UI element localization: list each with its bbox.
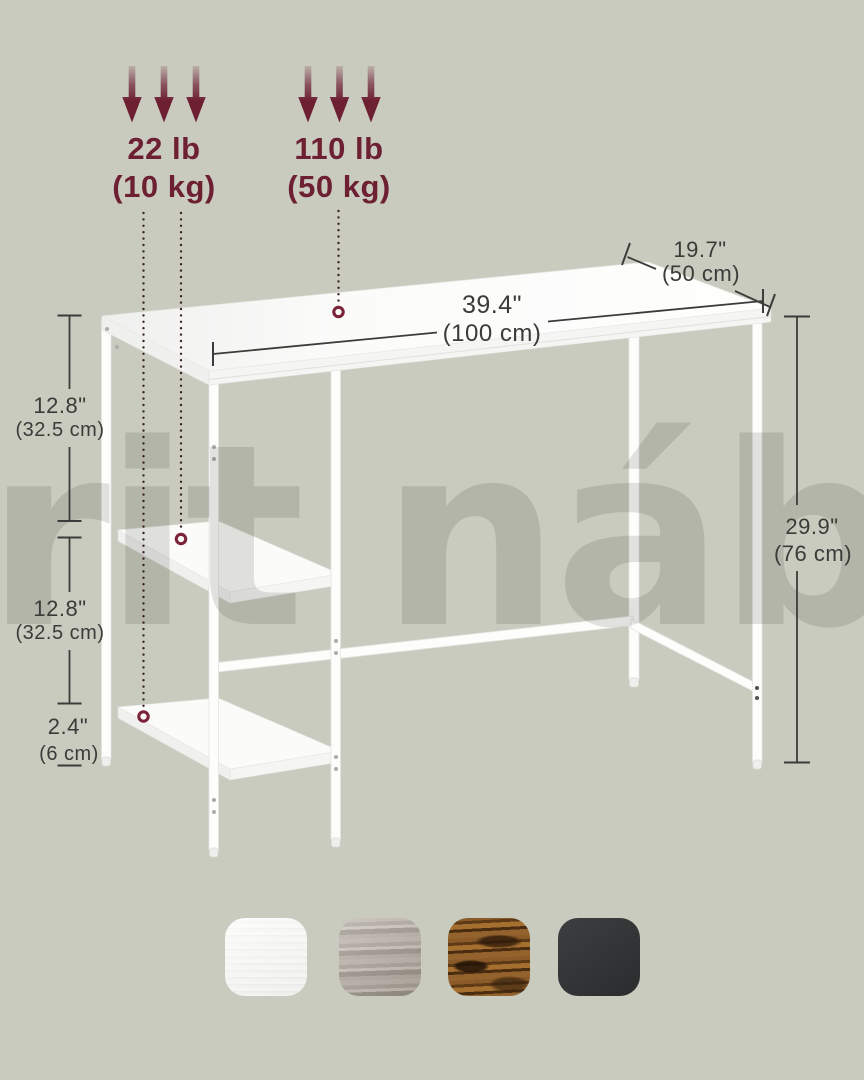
depth-inches-label: 19.7" [673,237,726,262]
color-swatch-rustic-brown [448,918,530,996]
upper-spacing-metric-label: (32.5 cm) [16,419,105,441]
clearance-metric-label: (6 cm) [39,743,99,765]
color-swatch-black [558,918,640,996]
down-arrow-icon [154,66,173,123]
leader-dot-icon [334,307,343,316]
tabletop-capacity-lb-label: 110 lb [294,131,383,166]
shelf-capacity-kg-label: (10 kg) [112,169,215,204]
height-dimension: 29.9" (76 cm) [774,317,852,763]
down-arrow-icon [330,66,349,123]
leader-dot-icon [176,534,185,543]
height-metric-label: (76 cm) [774,541,852,566]
clearance-inches-label: 2.4" [48,714,88,739]
down-arrow-icon [122,66,141,123]
width-dimension: 39.4" (100 cm) [213,289,763,366]
color-swatch-white-wood [225,918,307,996]
lower-spacing-metric-label: (32.5 cm) [16,622,105,644]
lower-spacing-inches-label: 12.8" [33,596,86,621]
bottom-clearance-dimension: 2.4" (6 cm) [39,714,99,766]
color-swatch-greige-wood [339,918,421,996]
annotation-layer: 22 lb (10 kg) 110 lb (50 kg) 39.4" (100 … [0,0,864,1080]
shelf-capacity-lb-label: 22 lb [127,131,200,166]
leader-dot-icon [139,712,148,721]
depth-dimension: 19.7" (50 cm) [622,237,775,316]
shelf-load-arrows-icon [122,66,205,123]
down-arrow-icon [298,66,317,123]
upper-shelf-spacing-dimension: 12.8" (32.5 cm) [16,316,105,522]
upper-spacing-inches-label: 12.8" [33,393,86,418]
lower-shelf-spacing-dimension: 12.8" (32.5 cm) [16,538,105,704]
width-inches-label: 39.4" [462,291,522,319]
height-inches-label: 29.9" [785,514,838,539]
tabletop-capacity-kg-label: (50 kg) [287,169,390,204]
down-arrow-icon [361,66,380,123]
product-dimension-diagram: rit náby 22 lb (10 kg) 110 lb (50 kg) [0,0,864,1080]
tabletop-load-arrows-icon [298,66,380,123]
leader-lines [139,211,343,721]
depth-metric-label: (50 cm) [662,261,740,286]
down-arrow-icon [186,66,205,123]
width-metric-label: (100 cm) [443,320,542,347]
